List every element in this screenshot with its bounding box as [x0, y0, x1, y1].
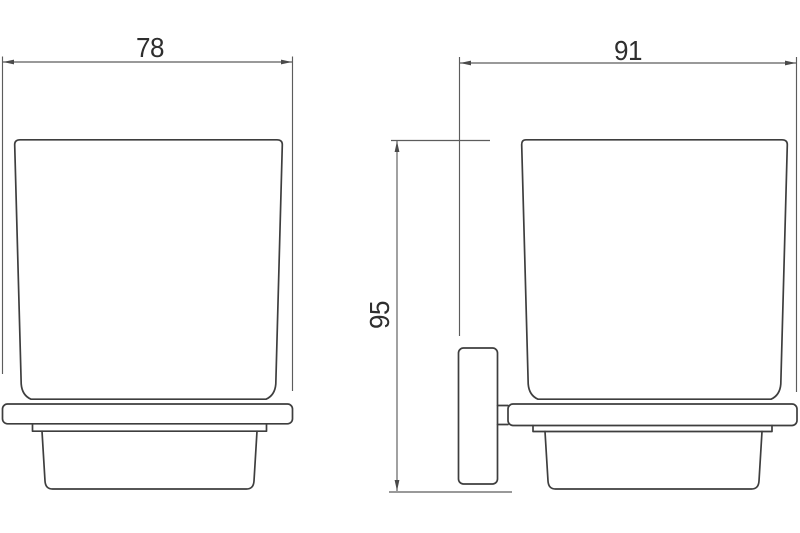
dimension-front-width: 78 [3, 32, 293, 391]
dimension-value-height: 95 [364, 301, 395, 329]
arrowhead-top [395, 141, 400, 152]
arrowhead-right [281, 60, 292, 65]
dimension-value-side-depth: 91 [614, 35, 642, 66]
front-glass-bottom [42, 431, 257, 489]
arrowhead-left [3, 60, 14, 65]
front-cup-outline [15, 140, 283, 399]
front-glass-lip [33, 424, 267, 431]
arrowhead-right [785, 61, 796, 66]
front-view [3, 140, 293, 489]
bracket-arm-joint [498, 406, 509, 425]
dimension-height: 95 [364, 141, 512, 493]
front-holder-plate [3, 404, 293, 424]
arrowhead-bottom [395, 480, 400, 491]
technical-drawing-page: 78 91 95 [0, 0, 800, 533]
dimension-side-depth: 91 [460, 35, 797, 392]
side-cup-outline [522, 140, 788, 399]
side-glass-bottom [545, 432, 762, 490]
wall-bracket [459, 348, 498, 484]
side-view [459, 140, 798, 489]
tumbler-holder-drawing: 78 91 95 [0, 0, 800, 533]
arrowhead-left [460, 61, 471, 66]
side-glass-lip [533, 426, 772, 432]
dimension-value-front-width: 78 [136, 32, 164, 63]
side-holder-plate [508, 404, 797, 426]
